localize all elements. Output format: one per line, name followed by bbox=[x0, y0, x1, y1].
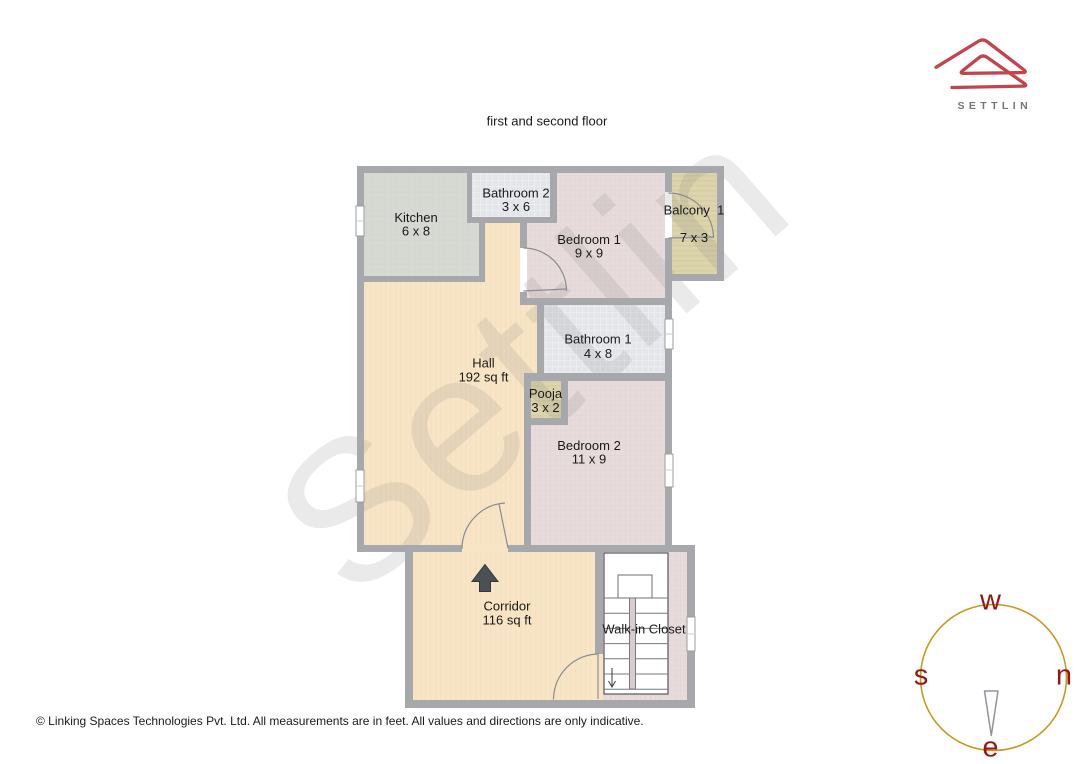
svg-text:11 x 9: 11 x 9 bbox=[572, 452, 606, 467]
svg-text:9 x 9: 9 x 9 bbox=[575, 246, 603, 261]
svg-text:Pooja: Pooja bbox=[529, 386, 563, 401]
svg-text:first and second floor: first and second floor bbox=[487, 114, 608, 129]
svg-text:© Linking Spaces Technologies: © Linking Spaces Technologies Pvt. Ltd. … bbox=[36, 714, 644, 728]
svg-text:Balcony 1: Balcony 1 bbox=[664, 203, 725, 218]
svg-text:Hall: Hall bbox=[472, 356, 495, 371]
svg-text:Bathroom 1: Bathroom 1 bbox=[564, 332, 631, 347]
svg-text:e: e bbox=[982, 732, 998, 764]
svg-text:4 x 8: 4 x 8 bbox=[584, 346, 612, 361]
svg-text:3 x 2: 3 x 2 bbox=[531, 400, 559, 415]
svg-text:SETTLIN: SETTLIN bbox=[958, 100, 1033, 112]
svg-text:Walk-in Closet: Walk-in Closet bbox=[602, 622, 686, 637]
svg-text:6 x 8: 6 x 8 bbox=[402, 224, 430, 239]
svg-text:7 x 3: 7 x 3 bbox=[680, 230, 708, 245]
svg-text:116 sq ft: 116 sq ft bbox=[483, 613, 532, 628]
svg-text:Corridor: Corridor bbox=[484, 599, 532, 614]
svg-text:n: n bbox=[1056, 660, 1072, 692]
svg-text:s: s bbox=[914, 660, 929, 692]
svg-text:w: w bbox=[979, 585, 1002, 617]
svg-text:192 sq ft: 192 sq ft bbox=[459, 370, 509, 385]
svg-text:3 x 6: 3 x 6 bbox=[502, 199, 530, 214]
